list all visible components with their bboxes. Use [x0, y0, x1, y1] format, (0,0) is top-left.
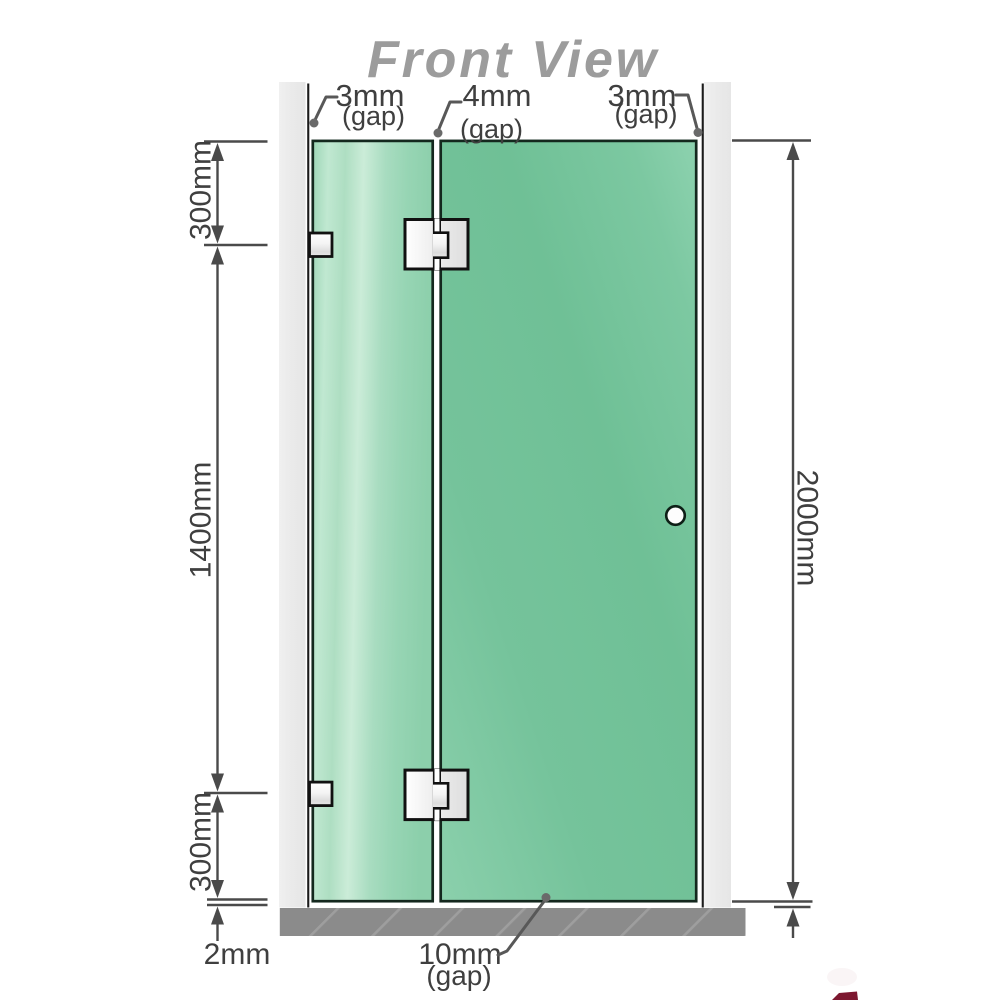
svg-text:(gap): (gap) [426, 960, 491, 991]
svg-text:(gap): (gap) [342, 101, 405, 131]
svg-text:1400mm: 1400mm [185, 462, 218, 579]
svg-text:2mm: 2mm [204, 938, 271, 971]
svg-text:2000mm: 2000mm [791, 470, 824, 587]
svg-text:(gap): (gap) [614, 99, 677, 129]
svg-text:300mm: 300mm [185, 792, 218, 892]
svg-text:(gap): (gap) [460, 114, 523, 144]
svg-text:300mm: 300mm [185, 140, 218, 240]
svg-text:4mm: 4mm [463, 78, 532, 113]
